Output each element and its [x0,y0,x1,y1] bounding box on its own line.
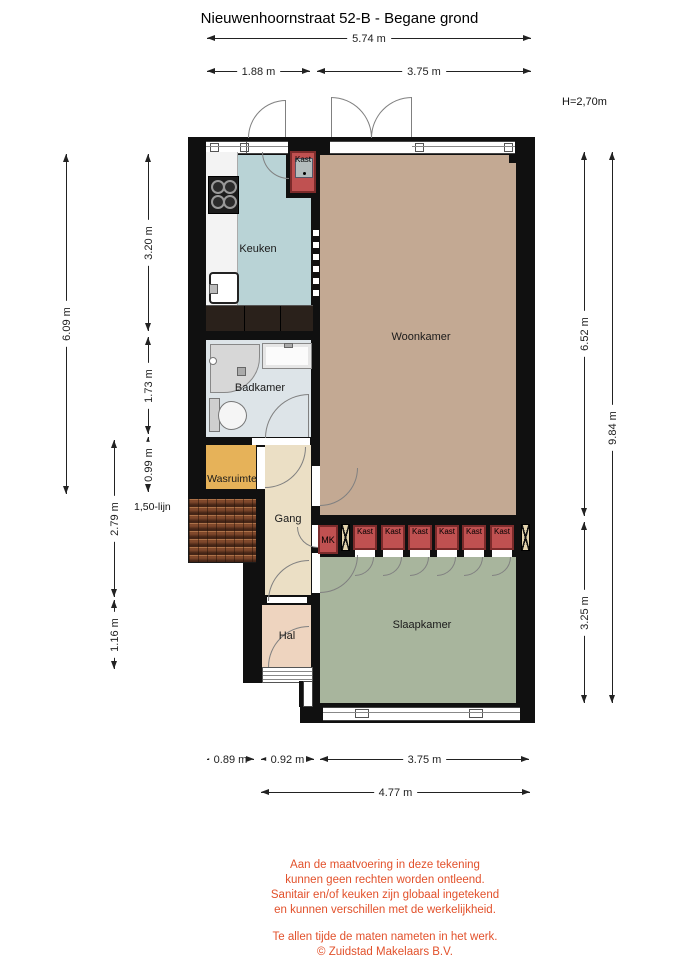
threshold-slaapkamer-door [312,553,320,593]
disclaimer-line: Aan de maatvoering in deze tekening [185,858,585,873]
disclaimer-copyright: © Zuidstad Makelaars B.V. [185,945,585,960]
kast-box: Kast [408,525,432,550]
dim-bottom-left: 0.89 m [207,759,254,760]
room-label-hal: Hal [279,630,296,642]
dim-label: 2.79 m [109,496,121,542]
dim-gang-depth: 2.79 m [114,440,115,597]
dim-bath-depth: 1.73 m [148,337,149,434]
kast-top-label: Kast [289,155,317,164]
disclaimer-spacer [185,918,585,930]
door-opening-woonkamer-top [330,141,412,154]
stove [208,176,239,214]
shower-head [209,357,217,365]
dim-label: 3.75 m [402,66,446,78]
floor-plan-page: Nieuwenhoornstraat 52-B - Begane grond [0,0,679,960]
roof-tiles [188,499,262,563]
dim-label: 0.99 m [143,442,155,488]
kast-label: Kast [357,527,373,536]
dim-right-upper: 6.52 m [584,152,585,516]
window-tick [469,709,483,718]
dim-hal-depth: 1.16 m [114,600,115,669]
kast-box: Kast [381,525,405,550]
door-leaf [411,97,412,137]
dim-label: 0.92 m [266,754,310,766]
wall-wasruimte-bottom [188,489,262,499]
kast-label: Kast [412,527,428,536]
kast-label: Kast [466,527,482,536]
kast-label: Kast [494,527,510,536]
door-arc-woonkamer-left [331,97,372,138]
kast-box: Kast [490,525,514,550]
window-tick [210,143,219,152]
dim-label: 6.52 m [579,311,591,357]
threshold-kast [383,550,403,557]
shaft-symbol [341,524,350,551]
dim-label: 6.09 m [61,301,73,347]
disclaimer-line: en kunnen verschillen met de werkelijkhe… [185,903,585,918]
window-tick [240,143,249,152]
dim-label: 4.77 m [374,787,418,799]
disclaimer-line: kunnen geen rechten worden ontleend. [185,873,585,888]
disclaimer-block: Aan de maatvoering in deze tekening kunn… [185,858,585,960]
dim-label: 0.89 m [209,754,253,766]
dim-right-total: 9.84 m [612,152,613,703]
door-leaf [285,100,286,137]
door-leaf [308,394,309,437]
threshold-kast [464,550,484,557]
kast-knob [303,172,306,175]
dim-bottom-total: 4.77 m [261,792,530,793]
room-label-woonkamer: Woonkamer [391,331,450,343]
window-divider [246,142,247,153]
stove-burner [223,180,237,194]
disclaimer-line: Sanitair en/of keuken zijn globaal inget… [185,888,585,903]
niche-door [303,681,313,707]
dim-left-total: 6.09 m [66,154,67,494]
kast-box: Kast [435,525,459,550]
ceiling-height-note: H=2,70m [562,96,607,108]
room-label-gang: Gang [275,513,302,525]
room-label-badkamer: Badkamer [235,382,285,394]
window-tick [355,709,369,718]
kast-box: Kast [353,525,377,550]
kitchen-sink [209,272,239,304]
threshold-kast [437,550,457,557]
wall-right [516,137,535,723]
dim-total-width-top: 5.74 m [207,38,531,39]
room-label-wasruimte: Wasruimte [207,473,257,485]
dim-living-width: 3.75 m [317,71,531,72]
dim-label: 5.74 m [347,33,391,45]
bathtub [262,343,312,369]
threshold-kast [492,550,512,557]
faucet [209,284,218,294]
shaft-symbol [521,524,530,551]
door-leaf [331,97,332,137]
window-tick [415,143,424,152]
window-woonkamer-top [412,141,515,154]
stove-burner [223,195,237,209]
kitchen-counter-dark [206,305,313,331]
mk-box: MK [318,525,338,554]
dim-wasruimte-depth: 0.99 m [148,437,149,492]
dim-label: 9.84 m [607,405,619,451]
dim-label: 1.73 m [143,363,155,409]
shower-drain [237,367,246,376]
dim-label: 1.16 m [109,612,121,658]
room-label-keuken: Keuken [239,243,276,255]
niche-side [313,681,317,707]
dim-kitchen-depth: 3.20 m [148,154,149,331]
threshold-badkamer-door [252,438,310,445]
threshold-kast [355,550,375,557]
mk-label: MK [320,535,336,545]
radiator-dashes [313,230,319,302]
kast-label: Kast [385,527,401,536]
door-arc-woonkamer-right [371,97,412,138]
threshold-woonkamer-door [312,466,320,506]
threshold-wasruimte-door [257,447,265,489]
dim-label: 3.75 m [403,754,447,766]
dim-label: 3.20 m [143,220,155,266]
disclaimer-note: Te allen tijde de maten nameten in het w… [185,930,585,945]
kast-top: Kast [290,151,316,193]
dim-bottom-right: 3.75 m [320,759,529,760]
wall-keuken-badkamer [188,330,313,340]
kast-label: Kast [439,527,455,536]
bath-drain [284,343,293,348]
dim-bottom-mid: 0.92 m [261,759,314,760]
window-slaapkamer-bottom [323,707,520,721]
dim-label: 1.88 m [237,66,281,78]
window-tick [504,143,513,152]
page-title: Nieuwenhoornstraat 52-B - Begane grond [0,10,679,27]
dim-label: 3.25 m [579,590,591,636]
dim-bedroom-depth: 3.25 m [584,522,585,703]
door-arc-keuken-exterior [248,100,286,138]
line150-note: 1,50-lijn [134,501,171,513]
room-label-slaapkamer: Slaapkamer [393,619,452,631]
dim-kitchen-width: 1.88 m [207,71,310,72]
threshold-kast [410,550,430,557]
kast-box: Kast [462,525,486,550]
